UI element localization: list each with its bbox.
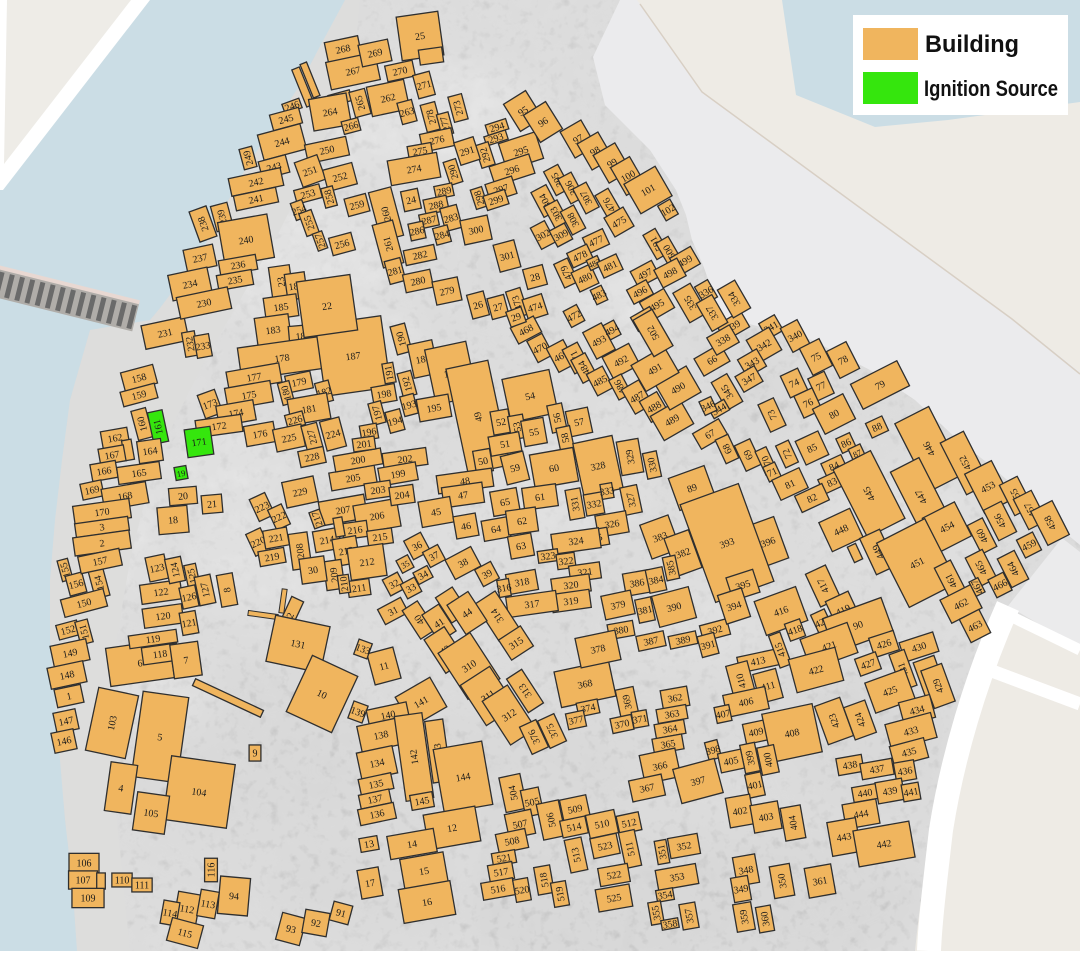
svg-text:Building: Building [925, 31, 1019, 58]
svg-text:9: 9 [253, 748, 258, 759]
svg-text:201: 201 [356, 438, 372, 451]
svg-text:18: 18 [168, 515, 179, 527]
svg-text:203: 203 [370, 484, 386, 497]
svg-text:14: 14 [406, 839, 418, 852]
svg-text:65: 65 [499, 497, 511, 510]
svg-text:12: 12 [446, 823, 458, 836]
svg-text:204: 204 [394, 489, 410, 502]
svg-text:105: 105 [143, 807, 159, 820]
svg-text:64: 64 [490, 524, 502, 537]
svg-text:317: 317 [524, 598, 540, 611]
svg-text:15: 15 [418, 866, 430, 879]
svg-text:171: 171 [191, 436, 207, 449]
svg-text:122: 122 [153, 586, 169, 599]
svg-text:21: 21 [207, 499, 218, 511]
svg-text:170: 170 [94, 506, 110, 519]
svg-text:119: 119 [145, 633, 161, 646]
svg-text:Ignition Source: Ignition Source [924, 76, 1058, 101]
svg-text:62: 62 [516, 516, 527, 528]
svg-text:30: 30 [307, 565, 318, 577]
svg-text:110: 110 [115, 875, 130, 886]
svg-text:17: 17 [364, 878, 376, 891]
svg-text:22: 22 [321, 301, 332, 313]
svg-text:55: 55 [528, 427, 540, 440]
svg-text:319: 319 [563, 595, 579, 608]
svg-text:210: 210 [338, 576, 351, 592]
svg-text:52: 52 [495, 417, 507, 430]
svg-text:109: 109 [81, 893, 96, 904]
svg-text:142: 142 [408, 749, 421, 765]
svg-text:94: 94 [228, 891, 239, 903]
svg-text:19: 19 [176, 468, 186, 479]
svg-text:211: 211 [351, 582, 367, 595]
svg-text:185: 185 [273, 301, 289, 314]
svg-text:324: 324 [568, 535, 584, 548]
svg-text:45: 45 [430, 507, 442, 520]
svg-text:120: 120 [155, 610, 171, 623]
svg-text:212: 212 [359, 556, 375, 569]
svg-text:323: 323 [540, 550, 556, 563]
svg-text:208: 208 [294, 543, 307, 559]
svg-text:187: 187 [345, 350, 361, 363]
svg-text:116: 116 [206, 863, 217, 878]
svg-text:63: 63 [515, 541, 527, 554]
svg-text:107: 107 [76, 875, 91, 886]
svg-text:60: 60 [548, 463, 560, 476]
svg-text:13: 13 [363, 839, 375, 852]
svg-text:164: 164 [142, 445, 158, 458]
svg-text:165: 165 [131, 467, 147, 480]
svg-text:20: 20 [178, 491, 189, 503]
svg-text:183: 183 [265, 324, 281, 337]
svg-text:16: 16 [421, 897, 433, 910]
svg-text:111: 111 [135, 880, 149, 891]
svg-text:118: 118 [152, 648, 168, 661]
svg-text:47: 47 [457, 490, 468, 502]
svg-text:215: 215 [372, 531, 388, 544]
svg-text:106: 106 [77, 858, 92, 869]
svg-text:51: 51 [499, 439, 511, 452]
svg-text:50: 50 [477, 456, 489, 469]
svg-text:172: 172 [211, 420, 227, 433]
svg-text:92: 92 [310, 918, 322, 931]
svg-text:61: 61 [534, 492, 545, 504]
svg-text:46: 46 [460, 521, 472, 534]
svg-text:25: 25 [414, 31, 425, 43]
svg-text:104: 104 [191, 786, 207, 799]
